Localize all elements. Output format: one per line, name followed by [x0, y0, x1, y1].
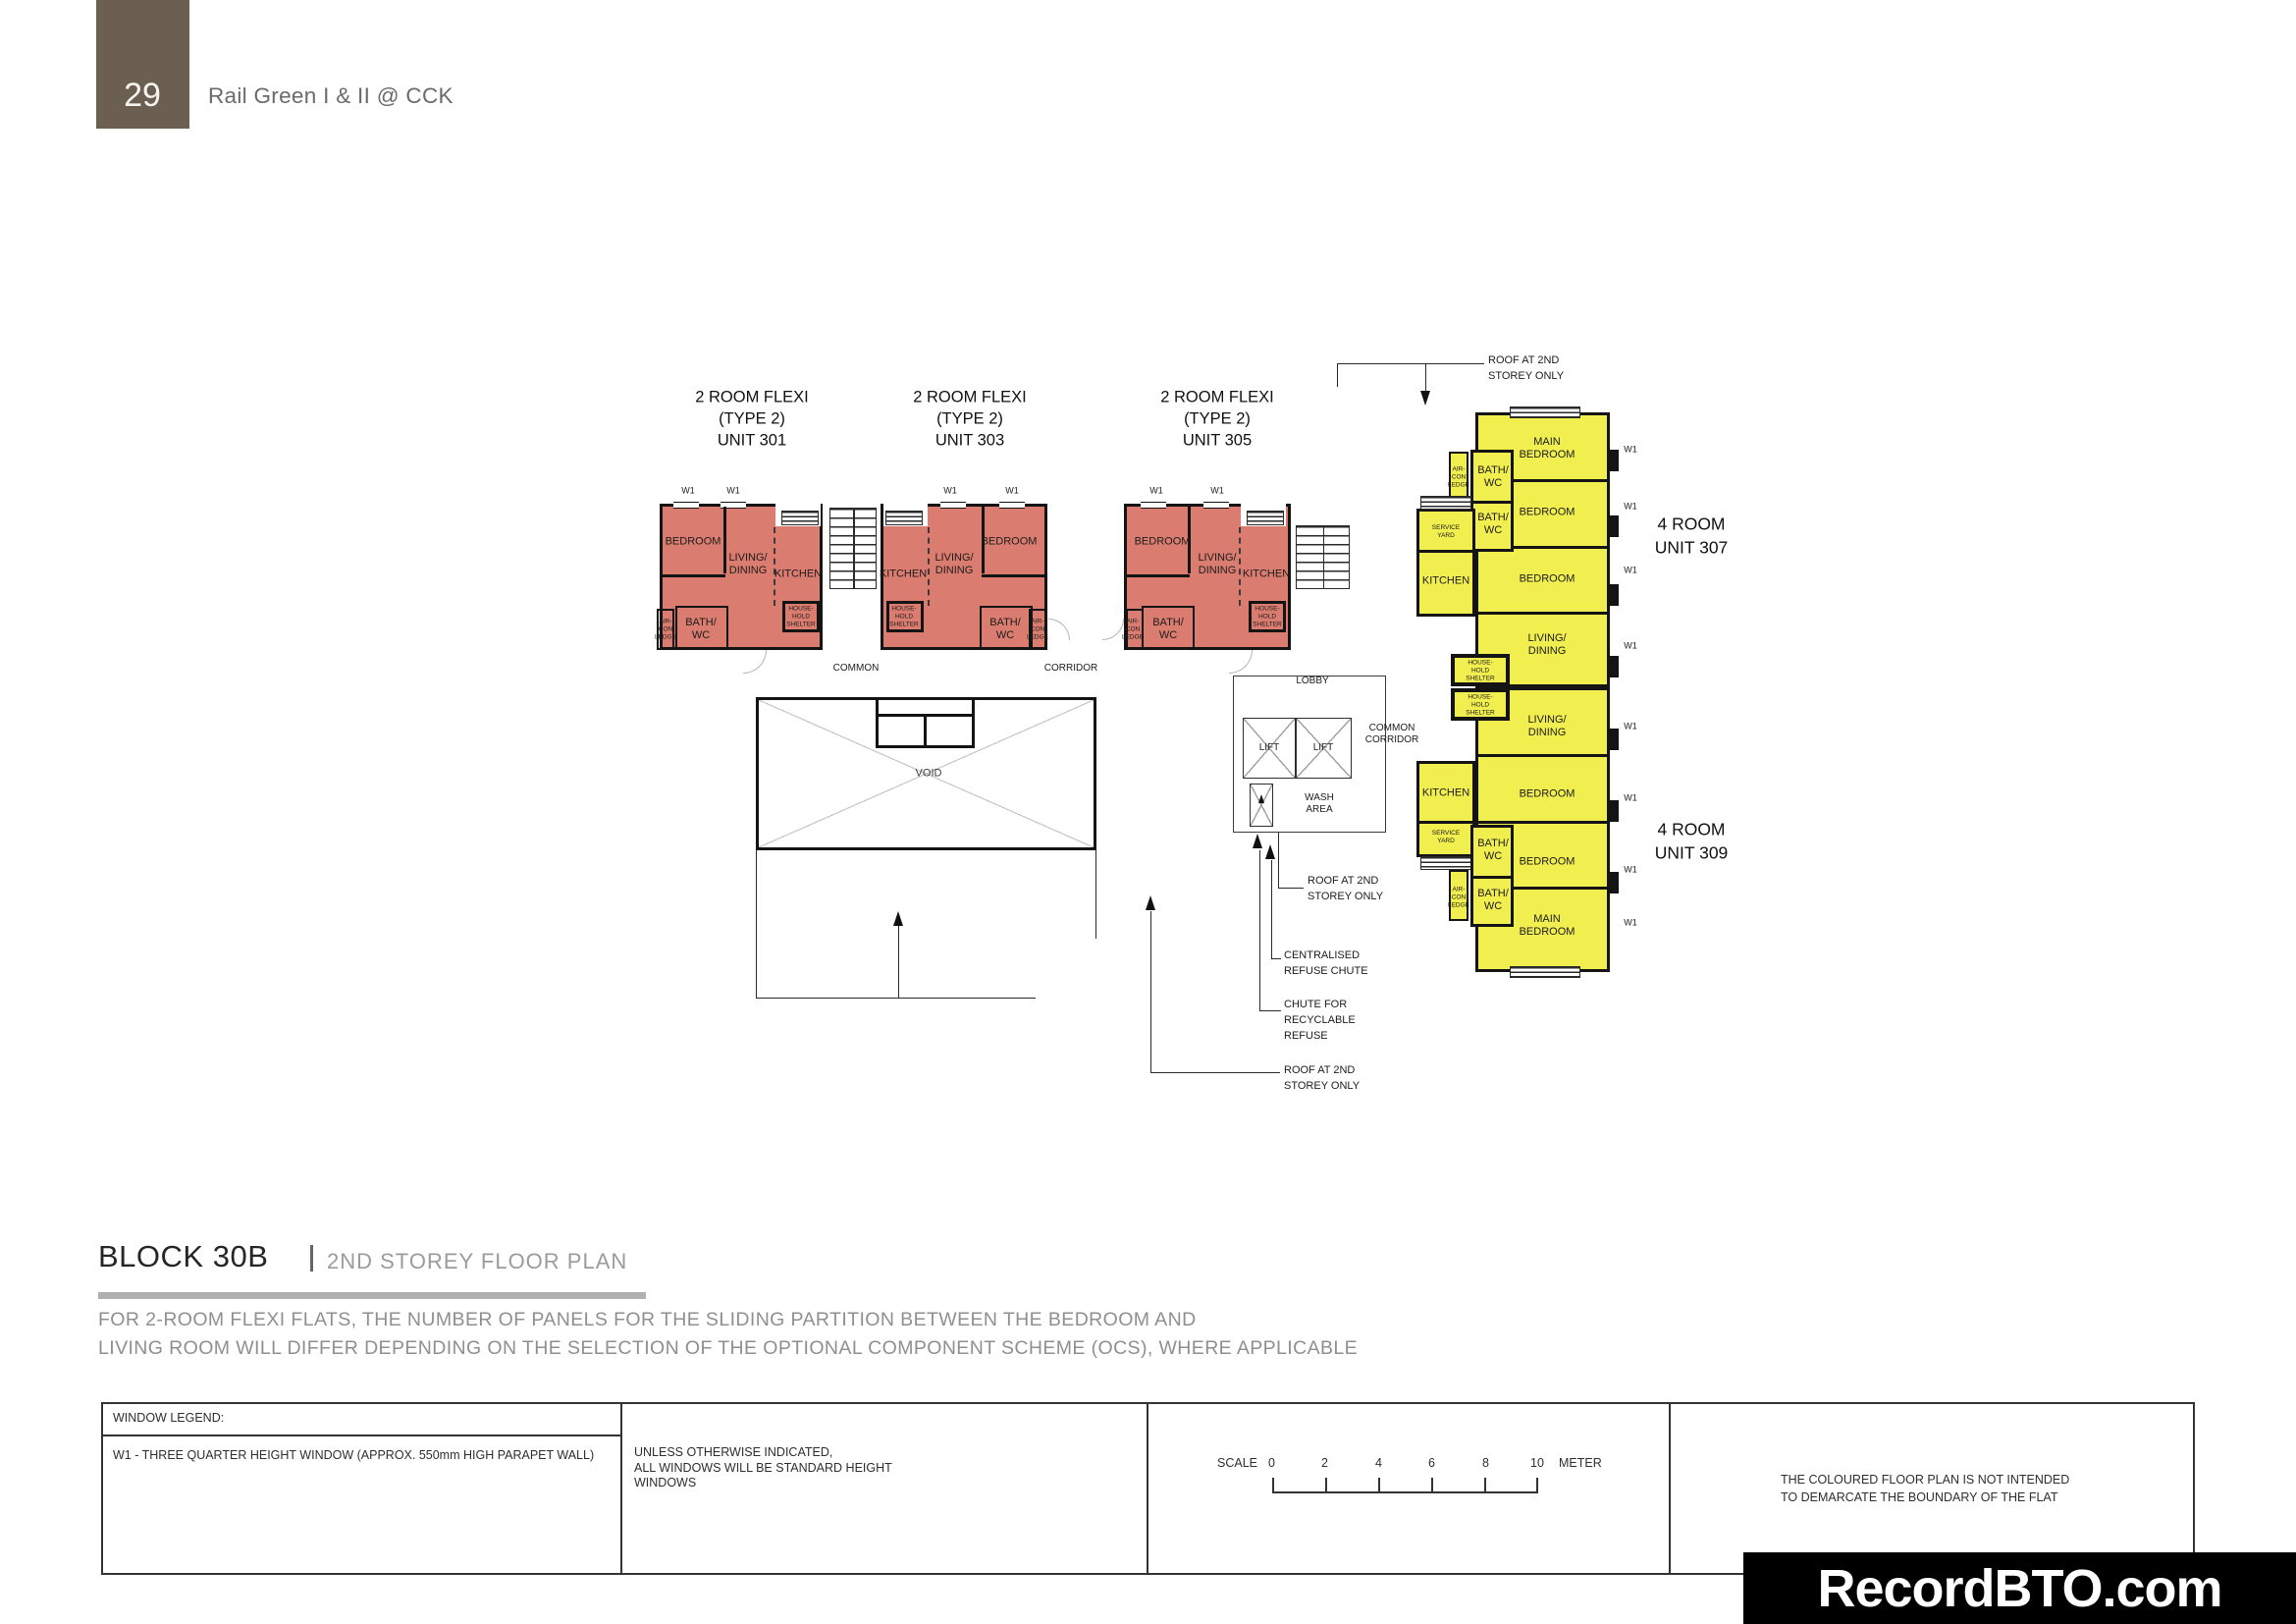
room-label-aircon-ledge: AIR- CON LEDGE	[1027, 618, 1048, 640]
partition-wall	[924, 714, 927, 746]
project-title: Rail Green I & II @ CCK	[208, 83, 454, 109]
direction-arrow	[1146, 895, 1155, 910]
window-stub	[1607, 872, 1619, 893]
room-label-living-dining: LIVING/ DINING	[1198, 552, 1236, 577]
table-divider	[1669, 1402, 1671, 1575]
table-divider	[101, 1435, 620, 1436]
room-label-bedroom: BEDROOM	[666, 536, 721, 549]
room-label-bedroom: BEDROOM	[1520, 573, 1575, 586]
room-label-kitchen: KITCHEN	[1422, 575, 1469, 588]
kitchen-partition	[774, 527, 775, 606]
leader-line	[1425, 363, 1426, 393]
w1-label: W1	[1005, 486, 1019, 497]
block-title: BLOCK 30B	[98, 1239, 268, 1274]
room-label-bedroom: BEDROOM	[982, 536, 1038, 549]
room-label-bedroom: BEDROOM	[1520, 788, 1575, 801]
louvre-window	[781, 511, 819, 525]
room-label-kitchen: KITCHEN	[774, 568, 822, 581]
leader-line	[1337, 363, 1484, 364]
chute-arrow	[1258, 794, 1264, 803]
scale-label: SCALE	[1217, 1456, 1257, 1472]
room-label-household-shelter: HOUSE- HOLD SHELTER	[889, 605, 919, 627]
leader-line	[1278, 888, 1304, 889]
scale-tick-mark	[1325, 1478, 1327, 1493]
kitchen-partition	[928, 527, 930, 606]
arrow-stem	[898, 926, 899, 998]
door-arc	[1229, 650, 1253, 674]
room-label-household-shelter: HOUSE- HOLD SHELTER	[1466, 693, 1495, 716]
plan-subtitle: 2ND STOREY FLOOR PLAN	[327, 1249, 627, 1274]
watermark-text: RecordBTO.com	[1817, 1558, 2221, 1619]
room-label-bedroom: BEDROOM	[1520, 507, 1575, 519]
partition-wall	[1419, 821, 1472, 824]
kitchen-partition	[1239, 527, 1241, 606]
room-label-bath-wc: BATH/ WC	[1477, 888, 1509, 913]
w1-label: W1	[1624, 865, 1637, 876]
leader-line	[1337, 363, 1338, 387]
title-underline	[98, 1292, 646, 1299]
w1-label: W1	[1210, 486, 1224, 497]
leader-line	[1150, 911, 1151, 1072]
lobby-label: LOBBY	[1296, 676, 1328, 687]
window-gap	[673, 502, 699, 509]
room-label-bedroom: BEDROOM	[1135, 536, 1191, 549]
leader-line	[1150, 1072, 1280, 1073]
room-label-bath-wc: BATH/ WC	[1477, 464, 1509, 490]
staircase	[1296, 525, 1350, 589]
table-divider	[1147, 1402, 1148, 1575]
room-label-living-dining: LIVING/ DINING	[934, 552, 973, 577]
window-stub	[1607, 584, 1619, 606]
table-divider	[620, 1402, 622, 1575]
window-stub	[1607, 729, 1619, 750]
w1-label: W1	[726, 486, 740, 497]
staircase	[829, 508, 877, 589]
room-label-kitchen: KITCHEN	[1243, 568, 1290, 581]
ocs-note: FOR 2-ROOM FLEXI FLATS, THE NUMBER OF PA…	[98, 1306, 1669, 1363]
scale-tick-mark	[1484, 1478, 1486, 1493]
louvre-window	[1510, 406, 1580, 418]
window-legend-header: WINDOW LEGEND:	[113, 1411, 224, 1427]
room-label-household-shelter: HOUSE- HOLD SHELTER	[1253, 605, 1282, 627]
room-label-service-yard: SERVICE YARD	[1432, 830, 1460, 845]
leader-line	[1271, 958, 1281, 959]
scale-tick-6: 6	[1428, 1456, 1435, 1472]
room-label-living-dining: LIVING/ DINING	[1527, 632, 1566, 658]
direction-arrow	[893, 911, 903, 926]
louvre-window	[1420, 856, 1471, 870]
scale-bar	[1272, 1491, 1538, 1493]
w1-label: W1	[1624, 793, 1637, 804]
room-label-household-shelter: HOUSE- HOLD SHELTER	[1466, 659, 1495, 681]
w1-label: W1	[1624, 502, 1637, 513]
louvre-window	[885, 511, 923, 525]
room-label-household-shelter: HOUSE- HOLD SHELTER	[786, 605, 816, 627]
unit-303-title: 2 ROOM FLEXI (TYPE 2) UNIT 303	[913, 387, 1027, 451]
window-stub	[1607, 656, 1619, 677]
leader-line	[1259, 850, 1260, 1011]
annotation-refuse-chute: CENTRALISED REFUSE CHUTE	[1284, 948, 1368, 980]
room-label-bath-wc: BATH/ WC	[1477, 512, 1509, 537]
room-label-bath-wc: BATH/ WC	[685, 617, 717, 642]
refuse-chute-box	[1250, 784, 1273, 827]
room-label-bedroom: BEDROOM	[1520, 856, 1575, 869]
room-label-bath-wc: BATH/ WC	[1477, 838, 1509, 863]
scale-tick-0: 0	[1268, 1456, 1275, 1472]
corridor-label-corridor: CORRIDOR	[1044, 663, 1097, 675]
partition-wall	[1419, 550, 1472, 553]
room-label-aircon-ledge: AIR- CON LEDGE	[655, 618, 676, 640]
window-gap	[999, 502, 1025, 509]
partition-wall	[1473, 876, 1511, 879]
scale-tick-mark	[1431, 1478, 1433, 1493]
room-label-aircon-ledge: AIR- CON LEDGE	[1448, 465, 1469, 488]
room-label-living-dining: LIVING/ DINING	[1527, 714, 1566, 739]
direction-arrow	[1420, 391, 1430, 406]
coloured-plan-note: THE COLOURED FLOOR PLAN IS NOT INTENDED …	[1781, 1471, 2069, 1506]
room-label-kitchen: KITCHEN	[880, 568, 927, 581]
annotation-roof-2nd-top: ROOF AT 2ND STOREY ONLY	[1488, 353, 1564, 385]
room-label-aircon-ledge: AIR- CON LEDGE	[1122, 618, 1144, 640]
scale-unit: METER	[1559, 1456, 1602, 1472]
partition-wall	[1478, 754, 1607, 757]
door-arc	[1048, 619, 1070, 640]
lift-1-label: LIFT	[1259, 742, 1280, 754]
annotation-roof-2nd-bottom: ROOF AT 2ND STOREY ONLY	[1284, 1063, 1360, 1095]
scale-tick-10: 10	[1530, 1456, 1544, 1472]
chute-arrow	[1253, 834, 1262, 848]
w1-label: W1	[681, 486, 695, 497]
scale-tick-mark	[1378, 1478, 1380, 1493]
room-label-aircon-ledge: AIR- CON LEDGE	[1448, 886, 1469, 908]
unit-305-title: 2 ROOM FLEXI (TYPE 2) UNIT 305	[1160, 387, 1274, 451]
partition-wall	[1127, 574, 1190, 577]
window-gap	[1141, 502, 1166, 509]
w1-label: W1	[1624, 641, 1637, 652]
window-stub	[1607, 800, 1619, 822]
partition-wall	[663, 574, 725, 577]
room-label-main-bedroom: MAIN BEDROOM	[1520, 436, 1575, 461]
w1-label: W1	[1624, 722, 1637, 732]
annotation-recyclable-chute: CHUTE FOR RECYCLABLE REFUSE	[1284, 998, 1356, 1045]
room-label-kitchen: KITCHEN	[1422, 787, 1469, 800]
floor-plan-page: 29 Rail Green I & II @ CCK 2 ROOM FLEXI …	[0, 0, 2296, 1624]
room-label-bath-wc: BATH/ WC	[1152, 617, 1184, 642]
leader-line	[1259, 1010, 1281, 1011]
w1-label: W1	[943, 486, 957, 497]
w1-label: W1	[1624, 566, 1637, 576]
title-divider	[310, 1245, 313, 1272]
w1-label: W1	[1624, 918, 1637, 929]
door-arc	[1102, 619, 1124, 640]
page-number: 29	[124, 76, 161, 115]
partition-wall	[723, 507, 726, 573]
leader-line	[1271, 860, 1272, 959]
scale-tick-2: 2	[1321, 1456, 1328, 1472]
scale-tick-mark	[1272, 1478, 1274, 1493]
partition-wall	[982, 574, 1044, 577]
door-arc	[743, 650, 767, 674]
w1-description: W1 - THREE QUARTER HEIGHT WINDOW (APPROX…	[113, 1448, 594, 1464]
w1-label: W1	[1624, 445, 1637, 456]
window-stub	[1607, 450, 1619, 471]
scale-tick-mark	[1536, 1478, 1538, 1493]
room-label-living-dining: LIVING/ DINING	[728, 552, 767, 577]
partition-wall	[1478, 821, 1607, 824]
partition-wall	[1478, 612, 1607, 615]
windows-note: UNLESS OTHERWISE INDICATED, ALL WINDOWS …	[634, 1445, 892, 1491]
louvre-window	[1247, 511, 1284, 525]
room-label-service-yard: SERVICE YARD	[1432, 524, 1460, 540]
window-gap	[940, 502, 966, 509]
unit-309-title: 4 ROOM UNIT 309	[1655, 818, 1729, 864]
roof-outline	[756, 998, 1036, 999]
leader-line	[1278, 833, 1279, 889]
unit-307-title: 4 ROOM UNIT 307	[1655, 513, 1729, 559]
room-label-main-bedroom: MAIN BEDROOM	[1520, 913, 1575, 939]
window-stub	[1607, 515, 1619, 537]
unit-301-title: 2 ROOM FLEXI (TYPE 2) UNIT 301	[695, 387, 809, 451]
lift-2-label: LIFT	[1313, 742, 1334, 754]
window-gap	[1203, 502, 1229, 509]
w1-label: W1	[1149, 486, 1163, 497]
watermark-banner: RecordBTO.com	[1743, 1552, 2296, 1624]
roof-outline	[756, 850, 757, 998]
annotation-roof-2nd-mid: ROOF AT 2ND STOREY ONLY	[1308, 874, 1383, 905]
common-corridor-label: COMMON CORRIDOR	[1365, 723, 1418, 746]
louvre-window	[1510, 966, 1580, 978]
louvre-window	[1420, 496, 1471, 510]
void-label: VOID	[916, 768, 942, 781]
roof-outline	[1095, 850, 1096, 939]
chute-arrow	[1265, 844, 1275, 859]
partition-wall	[1473, 501, 1511, 504]
scale-tick-8: 8	[1482, 1456, 1489, 1472]
wash-area-label: WASH AREA	[1305, 792, 1334, 816]
room-label-bath-wc: BATH/ WC	[989, 617, 1021, 642]
scale-tick-4: 4	[1375, 1456, 1382, 1472]
corridor-label-common: COMMON	[833, 663, 880, 675]
